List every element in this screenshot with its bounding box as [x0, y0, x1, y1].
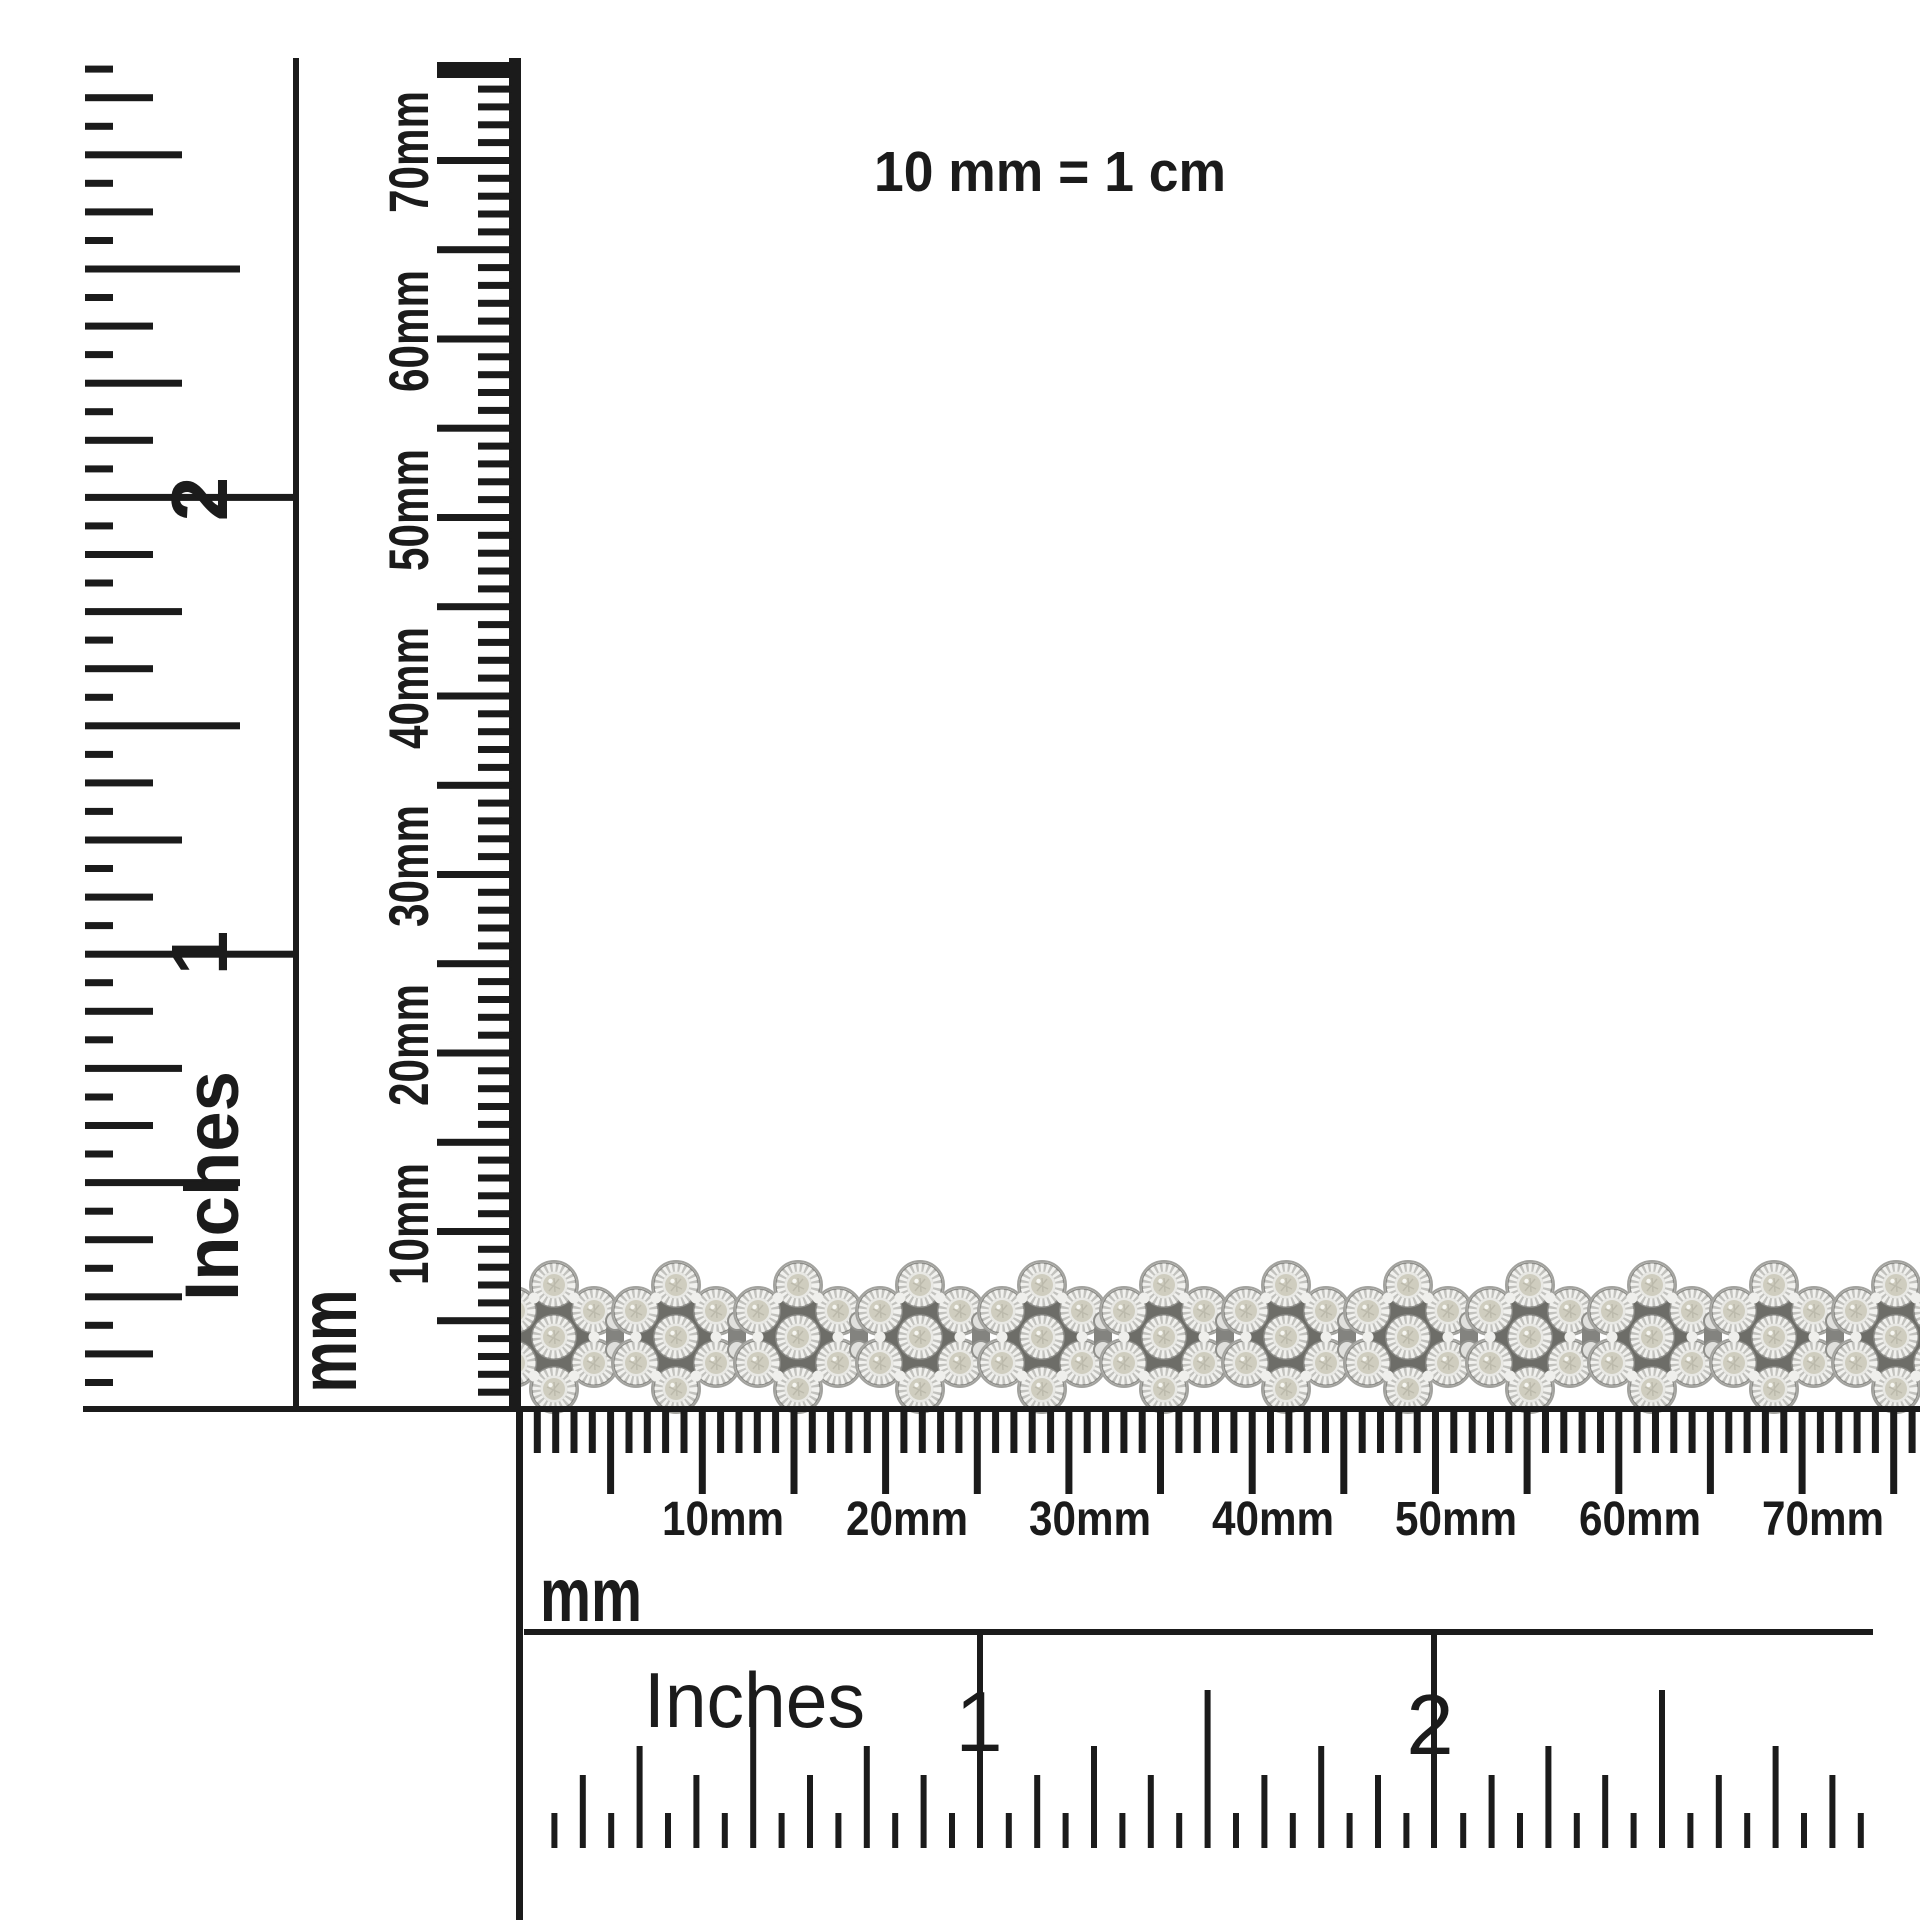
svg-text:Inches: Inches	[170, 1071, 255, 1301]
svg-text:1: 1	[155, 931, 244, 976]
svg-text:70mm: 70mm	[1762, 1493, 1884, 1546]
svg-text:10mm: 10mm	[662, 1493, 784, 1546]
svg-text:60mm: 60mm	[1579, 1493, 1701, 1546]
svg-text:30mm: 30mm	[377, 805, 440, 927]
svg-text:mm: mm	[540, 1553, 642, 1638]
svg-text:60mm: 60mm	[377, 270, 440, 392]
svg-text:40mm: 40mm	[377, 627, 440, 749]
svg-text:30mm: 30mm	[1029, 1493, 1151, 1546]
svg-text:70mm: 70mm	[377, 91, 440, 213]
svg-text:50mm: 50mm	[377, 449, 440, 571]
svg-text:2: 2	[155, 477, 244, 522]
svg-text:20mm: 20mm	[377, 984, 440, 1106]
svg-text:2: 2	[1406, 1678, 1453, 1773]
svg-text:40mm: 40mm	[1212, 1493, 1334, 1546]
svg-text:10 mm = 1 cm: 10 mm = 1 cm	[874, 140, 1226, 204]
svg-text:mm: mm	[283, 1290, 374, 1393]
svg-text:20mm: 20mm	[846, 1493, 968, 1546]
svg-text:50mm: 50mm	[1395, 1493, 1517, 1546]
svg-text:1: 1	[955, 1675, 1002, 1770]
svg-text:10mm: 10mm	[377, 1163, 440, 1285]
